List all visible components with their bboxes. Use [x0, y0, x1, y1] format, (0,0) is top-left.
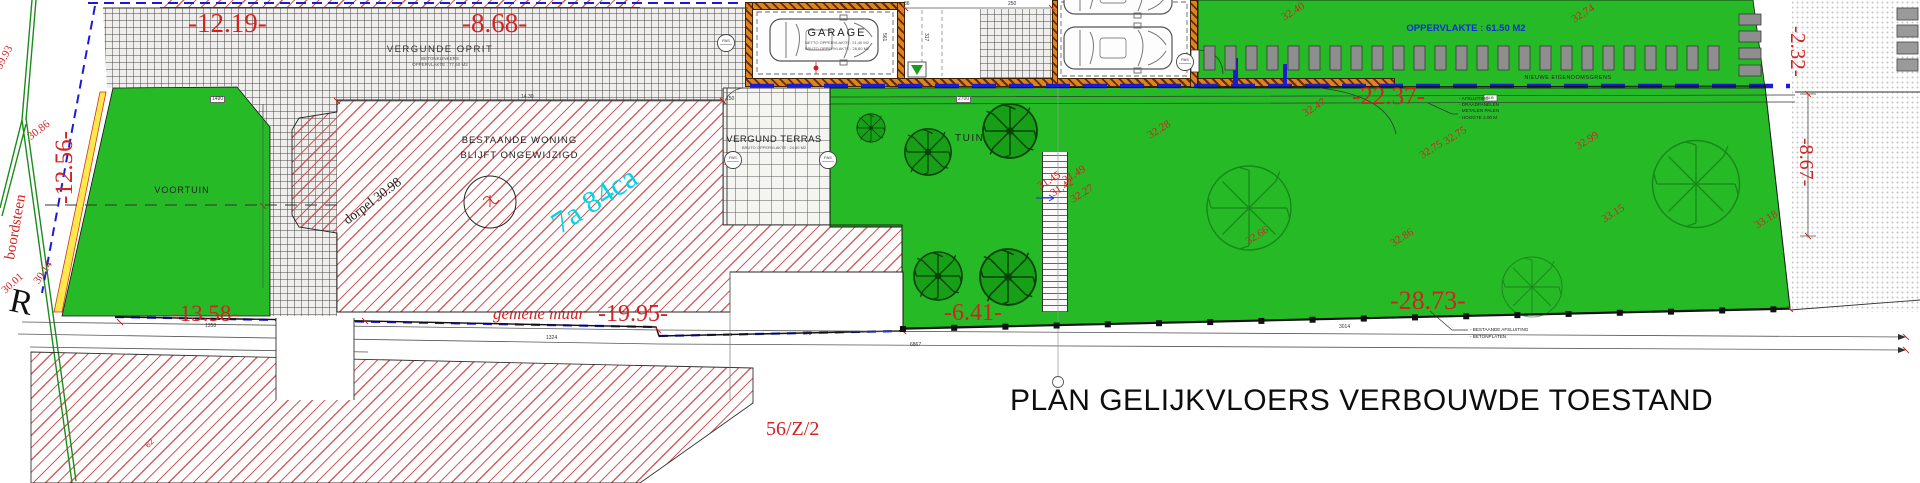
stepping-stone [1414, 46, 1425, 70]
stepping-stone [1435, 46, 1446, 70]
stepping-stone [1288, 46, 1299, 70]
stepping-stone [1267, 46, 1278, 70]
pas-marker-label: PAS [824, 155, 832, 160]
fence-note-line2: - DRAADPANELEN [1459, 102, 1499, 107]
stepping-stone [1225, 46, 1236, 70]
front-garden-label: VOORTUIN [140, 186, 224, 196]
fence-post-marker [1770, 306, 1776, 312]
small-dimension-label: 150 [726, 97, 734, 102]
dimension-label: -12.19- [188, 10, 267, 37]
stepping-stone [1246, 46, 1257, 70]
garage-note1: NETTO OPPERVLAKTE : 21,40 M2 [787, 41, 887, 45]
stepping-stone [1498, 46, 1509, 70]
dimension-label: -13.58- [172, 302, 239, 325]
parcel-ref-label: 56/Z/2 [766, 418, 819, 440]
fence-post-marker [1566, 311, 1572, 317]
small-dimension-label: 1490 [210, 96, 225, 103]
new-boundary-label: NIEUWE EIGENDOMSGRENS [1503, 75, 1633, 81]
fence-note-line1: - AFSLUITING [1459, 96, 1489, 101]
paving-pad [1897, 59, 1918, 71]
fence-post-marker [1668, 309, 1674, 315]
small-dimension-label: 1358 [205, 324, 216, 329]
stepping-stone [1739, 65, 1761, 76]
stepping-stone [1204, 46, 1215, 70]
strip-area-label: OPPERVLAKTE : 61.50 M2 [1396, 24, 1536, 34]
small-dimension-label: 1324 [546, 336, 557, 341]
stepping-stone [1372, 46, 1383, 70]
fence-post-marker [1361, 316, 1367, 322]
small-dimension-label: 250 [1008, 2, 1016, 7]
stepping-stone [1519, 46, 1530, 70]
neighbor-entrance-strip [276, 318, 354, 400]
fence-note-line3: - METALEN PALEN [1459, 108, 1499, 113]
fence-post-marker [1719, 307, 1725, 313]
pas-marker-label: PAS [1181, 57, 1189, 62]
fence-note-line4: - HOOGTE 2.00 M [1459, 115, 1497, 120]
garden-label: TUIN [955, 133, 984, 144]
fence-post-marker [1617, 310, 1623, 316]
stepping-stone [1582, 46, 1593, 70]
stepping-stone [1739, 48, 1761, 59]
dimension-label: -2.32- [1787, 26, 1808, 77]
stepping-stone [1561, 46, 1572, 70]
fence-post-marker [1412, 314, 1418, 320]
small-dimension-label: 679 [803, 332, 811, 337]
existing-fence-note-line2: - BETONPLATEN [1470, 334, 1506, 339]
stepping-stone [1540, 46, 1551, 70]
terrace-label: VERGUND TERRAS [710, 135, 838, 145]
paving-pad [1897, 42, 1918, 54]
driveway-note2: OPPERVLAKTE : 77,60 M2 [360, 63, 520, 68]
stepping-stone [1687, 46, 1698, 70]
fence-post-marker [1054, 323, 1060, 329]
dim-arrows [1898, 334, 1906, 353]
small-dimension-label: 317 [923, 33, 928, 41]
site-plan: PASPASPASPAS VERGUNDE OPRIT BETONKLINKER… [0, 0, 1920, 483]
driveway-label: VERGUNDE OPRIT [360, 45, 520, 55]
house-label-line1: BESTAANDE WONING [437, 136, 602, 146]
stepping-stone [1477, 46, 1488, 70]
stepping-stone [1456, 46, 1467, 70]
stepping-stone [1739, 14, 1761, 25]
paving-pad [1897, 25, 1918, 37]
dimension-label: gemene muur [493, 305, 585, 322]
house-label-line2: BLIJFT ONGEWIJZIGD [437, 151, 602, 161]
fence-post-marker [1156, 320, 1162, 326]
small-dimension-label: 3014 [1339, 325, 1350, 330]
fence-post-marker [1258, 318, 1264, 324]
dimension-label: -12.56- [52, 131, 77, 204]
stepping-stone [1645, 46, 1656, 70]
stepping-stone [1393, 46, 1404, 70]
paving-pad [1897, 8, 1918, 20]
terrace-note: BRUTO OPPERVLAKTE : 24,60 M2 [710, 146, 838, 150]
garage-note2: BRUTO OPPERVLAKTE : 26,80 M2 [787, 47, 887, 51]
fence-post-marker [1514, 312, 1520, 318]
fence-post-marker [900, 326, 906, 332]
existing-fence-note-line1: - BESTAANDE AFSLUITING [1470, 327, 1528, 332]
stepping-stone [1708, 46, 1719, 70]
pas-marker-label: PAS [722, 38, 730, 43]
fence-post-marker [1002, 324, 1008, 330]
small-dimension-label: 36 [904, 2, 910, 7]
pas-marker-label: PAS [729, 155, 737, 160]
stepping-stone [1624, 46, 1635, 70]
stepping-stone [1351, 46, 1362, 70]
dimension-label: -22.37- [1352, 84, 1425, 109]
stepping-stone [1603, 46, 1614, 70]
garage-label: GARAGE [797, 27, 877, 39]
dimension-label: -8.67- [1796, 138, 1816, 186]
small-dimension-label: 14.30 [521, 95, 534, 100]
fence-note-tag: GLB [1486, 96, 1494, 100]
small-dimension-label: 6867 [910, 343, 921, 348]
stepping-stone [1739, 31, 1761, 42]
small-dimension-label: 561 [881, 33, 886, 41]
dimension-label: -28.73- [1390, 288, 1466, 314]
dimension-label: -19.95- [598, 302, 668, 326]
dimension-label: -6.41- [944, 301, 1002, 325]
small-dimension-label: 2700 [956, 96, 971, 103]
fence-post-marker [1207, 319, 1213, 325]
stepping-stone [1330, 46, 1341, 70]
fence-post-marker [1310, 317, 1316, 323]
dimension-label: -8.68- [462, 10, 527, 37]
stepping-stone [1666, 46, 1677, 70]
plan-title: PLAN GELIJKVLOERS VERBOUWDE TOESTAND [1010, 384, 1713, 417]
fence-post-marker [1105, 321, 1111, 327]
stepping-stone [1309, 46, 1320, 70]
